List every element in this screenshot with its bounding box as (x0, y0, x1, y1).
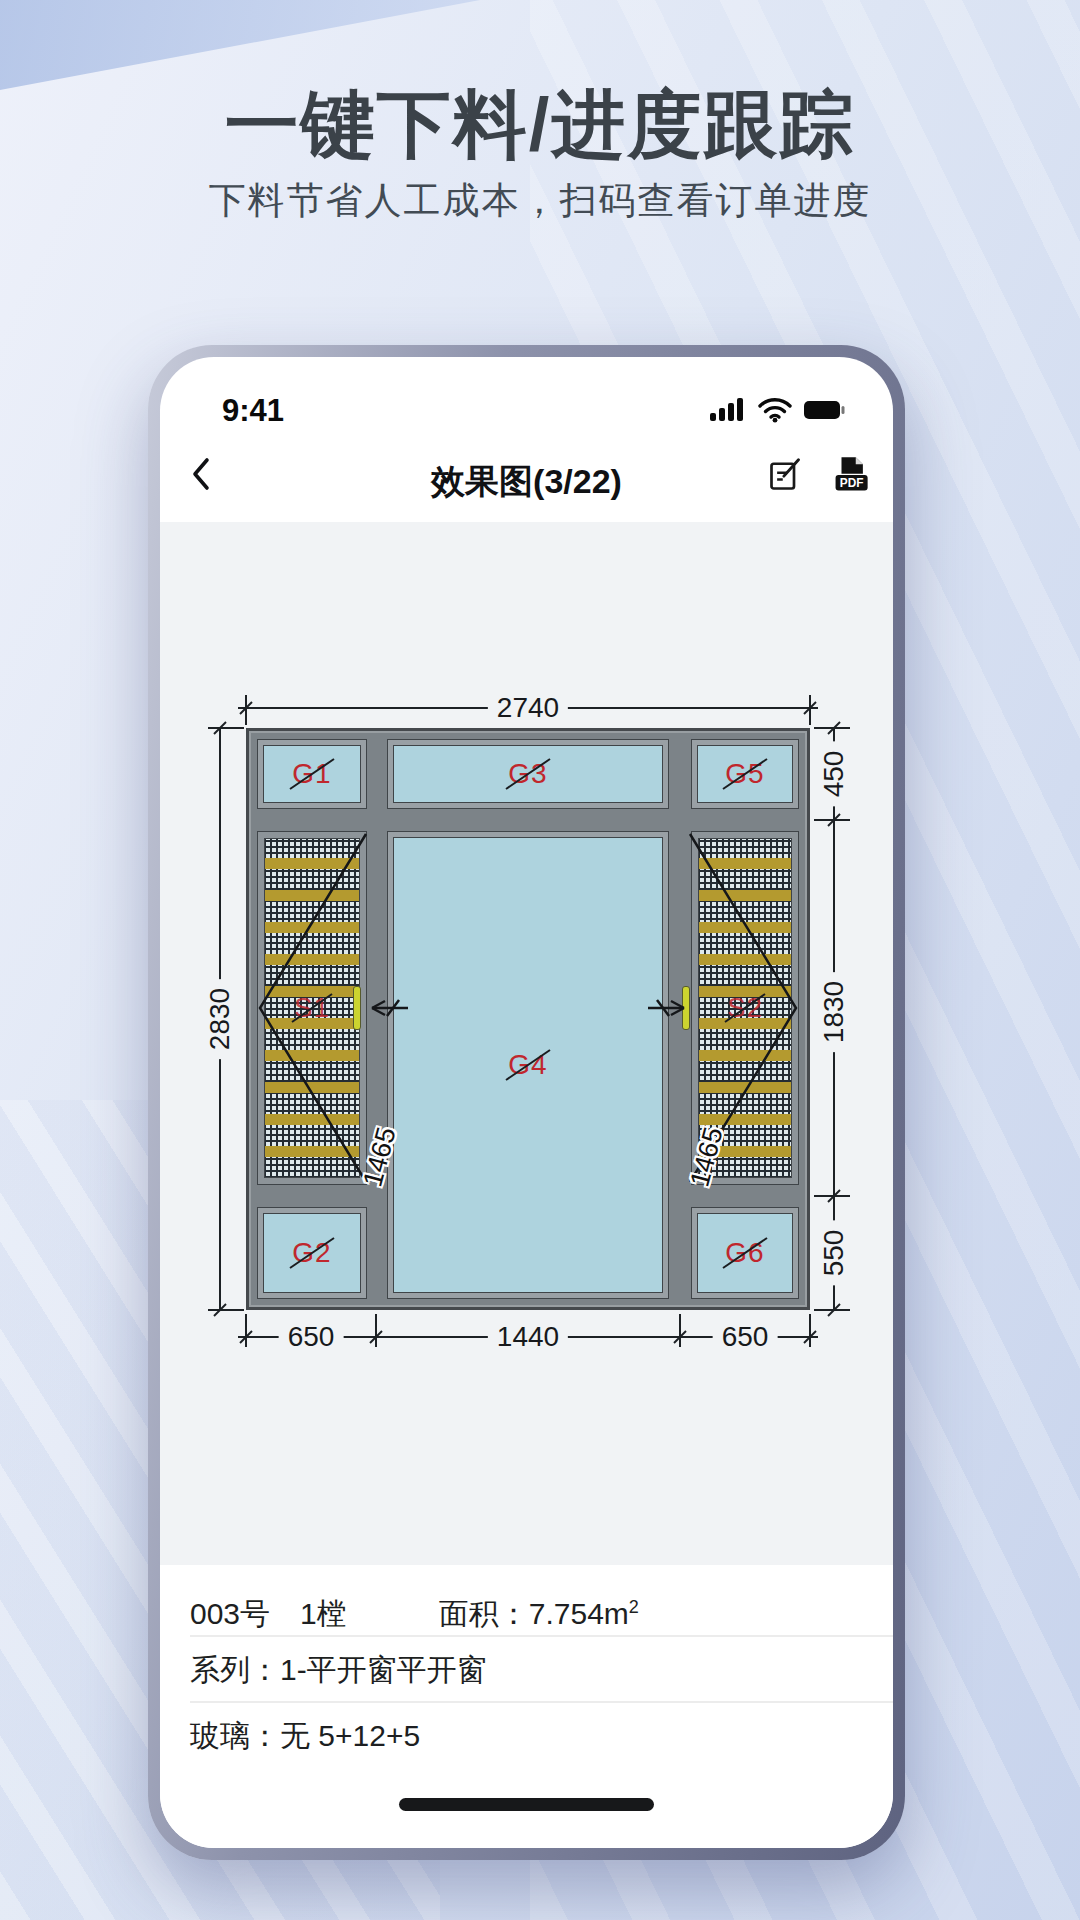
info-row-glass: 玻璃：无 5+12+5 (190, 1703, 893, 1769)
phone-screen: 9:41 (160, 357, 893, 1848)
edit-note-button[interactable] (765, 455, 805, 495)
phone-mockup: 9:41 (148, 345, 905, 1860)
battery-icon (803, 399, 845, 425)
signal-icon (709, 397, 747, 427)
wifi-icon (757, 397, 793, 427)
status-icons (709, 397, 845, 427)
hero-subtitle: 下料节省人工成本，扫码查看订单进度 (0, 176, 1080, 226)
nav-actions: PDF (765, 455, 871, 495)
area-superscript: 2 (629, 1597, 639, 1617)
info-row-summary: 003号1樘面积：7.754m2 (190, 1565, 893, 1637)
area-value: 7.754m (529, 1597, 629, 1630)
area-label: 面积： (439, 1597, 529, 1630)
unit-count: 1樘 (300, 1597, 347, 1630)
status-time: 9:41 (222, 393, 284, 429)
order-number: 003号 (190, 1597, 270, 1630)
drawing-canvas[interactable] (160, 522, 893, 1565)
hero-title: 一键下料/进度跟踪 (0, 76, 1080, 176)
pdf-badge-text: PDF (840, 476, 864, 490)
home-indicator[interactable] (399, 1798, 654, 1811)
export-pdf-button[interactable]: PDF (831, 455, 871, 495)
edit-note-icon (767, 457, 803, 493)
info-row-series: 系列：1-平开窗平开窗 (190, 1637, 893, 1703)
pdf-icon: PDF (832, 456, 870, 494)
